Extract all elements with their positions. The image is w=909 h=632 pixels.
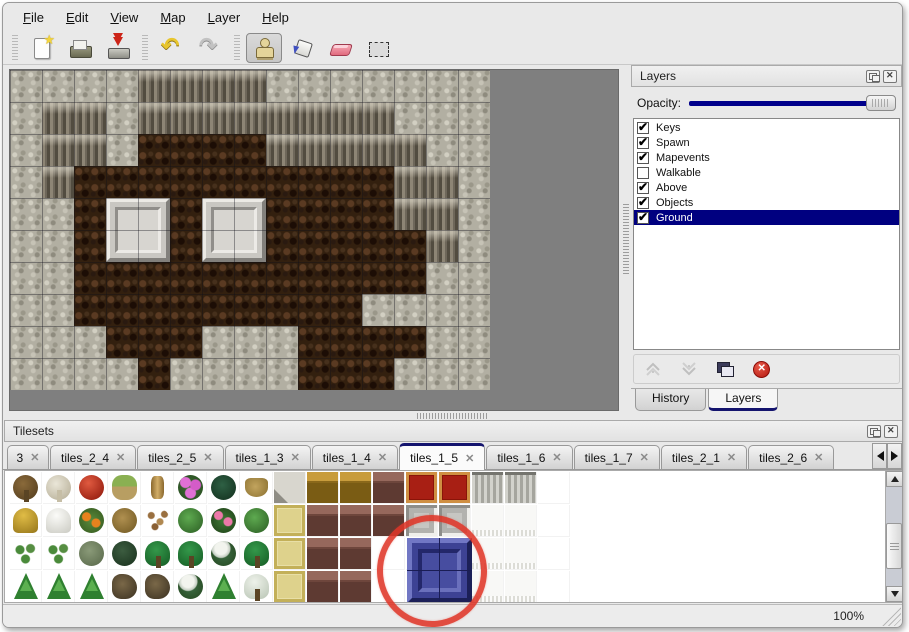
map-tile-brown-ground[interactable] bbox=[170, 198, 202, 230]
map-tile-light-rock[interactable] bbox=[42, 70, 74, 102]
map-tile-light-rock[interactable] bbox=[42, 230, 74, 262]
menu-edit[interactable]: Edit bbox=[56, 7, 98, 28]
map-tile-light-rock[interactable] bbox=[298, 70, 330, 102]
tileset-tab-tiles_1_4[interactable]: tiles_1_4✕ bbox=[312, 445, 398, 469]
close-panel-icon[interactable] bbox=[884, 425, 898, 438]
tileset-tile-empty[interactable] bbox=[538, 538, 570, 570]
layer-visibility-checkbox[interactable] bbox=[637, 167, 649, 179]
tileset-tile-hay-mound[interactable] bbox=[10, 505, 42, 537]
map-tile-light-rock[interactable] bbox=[426, 358, 458, 390]
map-tile-cliff-face[interactable] bbox=[266, 102, 298, 134]
map-tile-brown-ground[interactable] bbox=[74, 166, 106, 198]
tileset-tile-dry-grass[interactable] bbox=[241, 472, 273, 504]
tileset-tile-gold-wood[interactable] bbox=[340, 472, 372, 504]
tileset-tile-red-flower[interactable] bbox=[76, 472, 108, 504]
opacity-slider[interactable] bbox=[689, 94, 896, 112]
redo-button[interactable] bbox=[192, 33, 228, 63]
tileset-tile-brown-wood[interactable] bbox=[307, 505, 339, 537]
map-tile-cliff-face[interactable] bbox=[170, 70, 202, 102]
tileset-tile-gray-bush[interactable] bbox=[76, 538, 108, 570]
layer-name: Keys bbox=[656, 122, 680, 134]
chevron-down-icon bbox=[680, 360, 698, 378]
map-tile-light-rock[interactable] bbox=[426, 102, 458, 134]
tab-label: tiles_2_5 bbox=[148, 451, 196, 465]
tileset-tile-snow-tree[interactable] bbox=[175, 571, 207, 603]
tileset-tile-lily-pad[interactable] bbox=[241, 505, 273, 537]
map-tile-light-rock[interactable] bbox=[106, 134, 138, 166]
map-canvas-area[interactable] bbox=[9, 69, 619, 411]
float-panel-icon[interactable] bbox=[866, 70, 880, 83]
map-tile-brown-ground[interactable] bbox=[394, 326, 426, 358]
save-button[interactable] bbox=[100, 33, 136, 63]
map-tile-light-rock[interactable] bbox=[10, 102, 42, 134]
map-tile-brown-ground[interactable] bbox=[266, 230, 298, 262]
map-tile-brown-ground[interactable] bbox=[298, 358, 330, 390]
tileset-tab-tiles_2_4[interactable]: tiles_2_4✕ bbox=[50, 445, 136, 469]
map-tile-light-rock[interactable] bbox=[458, 70, 490, 102]
menu-file[interactable]: File bbox=[13, 7, 54, 28]
map-tile-brown-ground[interactable] bbox=[138, 262, 170, 294]
layer-visibility-checkbox[interactable]: ✔ bbox=[637, 137, 649, 149]
map-tile-light-rock[interactable] bbox=[106, 70, 138, 102]
new-button[interactable] bbox=[24, 33, 60, 63]
map-tile-light-rock[interactable] bbox=[458, 326, 490, 358]
checkmark-icon: ✔ bbox=[638, 120, 648, 134]
map-tile-brown-ground[interactable] bbox=[170, 134, 202, 166]
map-tile-light-rock[interactable] bbox=[42, 358, 74, 390]
layer-row-walkable[interactable]: Walkable bbox=[634, 165, 899, 180]
map-tile-cliff-face[interactable] bbox=[42, 134, 74, 166]
tileset-tile-bare-tree[interactable] bbox=[10, 472, 42, 504]
tileset-tab-tiles_1_3[interactable]: tiles_1_3✕ bbox=[225, 445, 311, 469]
map-tile-light-rock[interactable] bbox=[10, 70, 42, 102]
map-tile-cliff-face[interactable] bbox=[170, 102, 202, 134]
tileset-tile-stump[interactable] bbox=[109, 472, 141, 504]
map-tile-brown-ground[interactable] bbox=[138, 166, 170, 198]
tileset-tile-snow-palm[interactable] bbox=[241, 571, 273, 603]
tileset-tile-dark-bush[interactable] bbox=[109, 538, 141, 570]
map-tile-brown-ground[interactable] bbox=[138, 294, 170, 326]
layer-visibility-checkbox[interactable]: ✔ bbox=[637, 182, 649, 194]
checkmark-icon: ✔ bbox=[638, 210, 648, 224]
map-tile-light-rock[interactable] bbox=[458, 102, 490, 134]
map-tile-cliff-face[interactable] bbox=[362, 134, 394, 166]
map-tile-cliff-face[interactable] bbox=[138, 102, 170, 134]
map-tile-light-rock[interactable] bbox=[426, 294, 458, 326]
map-tile-light-rock[interactable] bbox=[266, 70, 298, 102]
map-tile-brown-ground[interactable] bbox=[234, 134, 266, 166]
tileset-tile-sprouts[interactable] bbox=[10, 538, 42, 570]
map-tile-brown-ground[interactable] bbox=[330, 358, 362, 390]
map-tile-brown-ground[interactable] bbox=[362, 358, 394, 390]
map-tile-brown-ground[interactable] bbox=[362, 262, 394, 294]
tileset-tile-gray-curtain[interactable] bbox=[505, 472, 537, 504]
layer-row-keys[interactable]: ✔Keys bbox=[634, 120, 899, 135]
map-tile-brown-ground[interactable] bbox=[330, 294, 362, 326]
map-tile-cliff-face[interactable] bbox=[74, 102, 106, 134]
float-panel-icon[interactable] bbox=[867, 425, 881, 438]
map-tile-brown-ground[interactable] bbox=[74, 294, 106, 326]
map-tile-cliff-face[interactable] bbox=[394, 198, 426, 230]
map-tile-light-rock[interactable] bbox=[234, 358, 266, 390]
map-tile-light-rock[interactable] bbox=[458, 358, 490, 390]
map-tile-brown-ground[interactable] bbox=[266, 198, 298, 230]
map-tile-brown-ground[interactable] bbox=[106, 326, 138, 358]
toolbar-handle[interactable] bbox=[12, 35, 18, 61]
tileset-tile-brown-wood[interactable] bbox=[307, 538, 339, 570]
tileset-tile-conifer[interactable] bbox=[76, 571, 108, 603]
layer-name: Spawn bbox=[656, 137, 690, 149]
opacity-row: Opacity: bbox=[631, 91, 902, 115]
map-tile-brown-ground[interactable] bbox=[74, 230, 106, 262]
tab-label: tiles_1_6 bbox=[497, 451, 545, 465]
delete-layer-button[interactable] bbox=[748, 357, 774, 381]
tileset-tile-pink-flowers[interactable] bbox=[175, 472, 207, 504]
map-tile-brown-ground[interactable] bbox=[330, 230, 362, 262]
layers-dock: Layers Opacity: ✔Keys✔Spawn✔MapeventsWal… bbox=[631, 65, 902, 411]
map-tile-cliff-face[interactable] bbox=[138, 70, 170, 102]
map-tile-brown-ground[interactable] bbox=[170, 230, 202, 262]
map-tile-light-rock[interactable] bbox=[170, 358, 202, 390]
tileset-tile-twisted-tree[interactable] bbox=[109, 571, 141, 603]
map-tile-cliff-face[interactable] bbox=[266, 134, 298, 166]
map-tile-cliff-face[interactable] bbox=[394, 134, 426, 166]
map-tile-light-rock[interactable] bbox=[362, 294, 394, 326]
toolbar-handle[interactable] bbox=[142, 35, 148, 61]
tab-close-icon[interactable]: ✕ bbox=[465, 452, 474, 465]
tileset-tile-leaves[interactable] bbox=[142, 505, 174, 537]
map-tile-light-rock[interactable] bbox=[106, 358, 138, 390]
tileset-scrollbar[interactable] bbox=[885, 471, 902, 602]
open-button[interactable] bbox=[62, 33, 98, 63]
stamp-tool-icon bbox=[252, 36, 276, 60]
map-tile-cliff-face[interactable] bbox=[202, 102, 234, 134]
arrow-left-icon bbox=[872, 451, 884, 461]
tab-label: tiles_1_3 bbox=[236, 451, 284, 465]
map-tile-brown-ground[interactable] bbox=[170, 166, 202, 198]
map-tile-brown-ground[interactable] bbox=[202, 134, 234, 166]
map-tile-cliff-face[interactable] bbox=[298, 102, 330, 134]
map-tile-cliff-face[interactable] bbox=[42, 102, 74, 134]
map-tile-cliff-face[interactable] bbox=[426, 198, 458, 230]
map-tile-light-rock[interactable] bbox=[10, 294, 42, 326]
tileset-tab-3[interactable]: 3✕ bbox=[7, 445, 49, 469]
map-tile-brown-ground[interactable] bbox=[394, 262, 426, 294]
tileset-tile-snow-tree[interactable] bbox=[208, 538, 240, 570]
map-tile-cliff-face[interactable] bbox=[234, 70, 266, 102]
map-tile-cliff-face[interactable] bbox=[42, 166, 74, 198]
map-tile-brown-ground[interactable] bbox=[266, 262, 298, 294]
tileset-tile-twisted-tree[interactable] bbox=[142, 571, 174, 603]
tileset-tile-gold-wood[interactable] bbox=[307, 472, 339, 504]
scrollbar-thumb[interactable] bbox=[886, 523, 902, 569]
map-tile-cliff-face[interactable] bbox=[426, 230, 458, 262]
tileset-tab-tiles_2_6[interactable]: tiles_2_6✕ bbox=[748, 445, 834, 469]
tileset-tile-brown-wood[interactable] bbox=[307, 571, 339, 603]
map-tile-brown-ground[interactable] bbox=[266, 294, 298, 326]
tileset-tile-red-carpet[interactable] bbox=[406, 472, 438, 504]
tileset-tile-conifer[interactable] bbox=[10, 571, 42, 603]
map-tile-light-rock[interactable] bbox=[74, 358, 106, 390]
tileset-tile-palm-tree[interactable] bbox=[241, 538, 273, 570]
tab-scroll-buttons bbox=[872, 443, 902, 469]
tileset-tile-orange-flowers[interactable] bbox=[76, 505, 108, 537]
map-tile-brown-ground[interactable] bbox=[202, 262, 234, 294]
tileset-tile-empty[interactable] bbox=[538, 571, 570, 603]
tileset-tile-white-curtain[interactable] bbox=[472, 505, 504, 537]
tileset-tile-fern[interactable] bbox=[208, 472, 240, 504]
map-tile-brown-ground[interactable] bbox=[298, 262, 330, 294]
arrow-up-icon bbox=[891, 472, 899, 482]
map-tile-light-rock[interactable] bbox=[458, 166, 490, 198]
tab-close-icon[interactable]: ✕ bbox=[203, 451, 212, 464]
map-tile-light-rock[interactable] bbox=[394, 70, 426, 102]
tileset-tile-brown-wood[interactable] bbox=[340, 538, 372, 570]
tileset-tile-white-curtain[interactable] bbox=[505, 505, 537, 537]
tileset-tile-sprouts[interactable] bbox=[43, 538, 75, 570]
map-beveled-block[interactable] bbox=[202, 198, 266, 262]
map-tile-light-rock[interactable] bbox=[10, 326, 42, 358]
tileset-tab-tiles_1_7[interactable]: tiles_1_7✕ bbox=[574, 445, 660, 469]
map-tile-cliff-face[interactable] bbox=[330, 134, 362, 166]
dock-tab-layers[interactable]: Layers bbox=[708, 389, 778, 411]
menu-view[interactable]: View bbox=[100, 7, 148, 28]
map-tile-light-rock[interactable] bbox=[106, 102, 138, 134]
tileset-grid[interactable] bbox=[10, 472, 571, 603]
map-tile-brown-ground[interactable] bbox=[138, 134, 170, 166]
map-tile-light-rock[interactable] bbox=[74, 70, 106, 102]
map-tile-light-rock[interactable] bbox=[394, 294, 426, 326]
map-tile-cliff-face[interactable] bbox=[362, 102, 394, 134]
tileset-tile-palm-tree[interactable] bbox=[142, 538, 174, 570]
map-tile-light-rock[interactable] bbox=[458, 230, 490, 262]
layer-visibility-checkbox[interactable]: ✔ bbox=[637, 122, 649, 134]
map-tile-cliff-face[interactable] bbox=[74, 134, 106, 166]
scroll-tabs-right-button[interactable] bbox=[887, 443, 902, 469]
map-tile-brown-ground[interactable] bbox=[202, 294, 234, 326]
close-panel-icon[interactable] bbox=[883, 70, 897, 83]
stamp-button[interactable] bbox=[246, 33, 282, 63]
splitter-grip[interactable] bbox=[623, 204, 629, 276]
map-tile-brown-ground[interactable] bbox=[170, 326, 202, 358]
map-tile-brown-ground[interactable] bbox=[394, 230, 426, 262]
tab-close-icon[interactable]: ✕ bbox=[552, 451, 561, 464]
map-tile-brown-ground[interactable] bbox=[330, 326, 362, 358]
tilesets-panel-titlebar: Tilesets bbox=[4, 420, 903, 442]
tab-close-icon[interactable]: ✕ bbox=[640, 451, 649, 464]
select-button[interactable] bbox=[360, 33, 396, 63]
tileset-tile-lily-pad[interactable] bbox=[175, 505, 207, 537]
tileset-tile-mat[interactable] bbox=[274, 538, 306, 570]
map-tile-brown-ground[interactable] bbox=[202, 166, 234, 198]
map-tile-brown-ground[interactable] bbox=[362, 166, 394, 198]
map-tile-brown-ground[interactable] bbox=[234, 294, 266, 326]
map-tile-light-rock[interactable] bbox=[426, 262, 458, 294]
opacity-slider-track[interactable] bbox=[689, 101, 894, 106]
tileset-tile-palm-tree[interactable] bbox=[175, 538, 207, 570]
tab-close-icon[interactable]: ✕ bbox=[291, 451, 300, 464]
tab-close-icon[interactable]: ✕ bbox=[378, 451, 387, 464]
dock-tab-history[interactable]: History bbox=[635, 389, 706, 411]
map-tile-brown-ground[interactable] bbox=[234, 262, 266, 294]
map-tile-brown-ground[interactable] bbox=[106, 294, 138, 326]
tileset-tile-dead-tree[interactable] bbox=[43, 472, 75, 504]
map-tile-brown-ground[interactable] bbox=[330, 262, 362, 294]
tileset-tile-dry-bush[interactable] bbox=[109, 505, 141, 537]
map-tile-light-rock[interactable] bbox=[42, 198, 74, 230]
tab-close-icon[interactable]: ✕ bbox=[30, 451, 39, 464]
tileset-tile-empty[interactable] bbox=[538, 472, 570, 504]
scroll-up-button[interactable] bbox=[886, 471, 903, 487]
fill-button[interactable] bbox=[284, 33, 320, 63]
arrow-down-icon bbox=[891, 591, 899, 601]
map-tile-light-rock[interactable] bbox=[330, 70, 362, 102]
map-tile-light-rock[interactable] bbox=[234, 326, 266, 358]
map-tile-brown-ground[interactable] bbox=[106, 166, 138, 198]
toolbar-handle[interactable] bbox=[234, 35, 240, 61]
tab-close-icon[interactable]: ✕ bbox=[814, 451, 823, 464]
lower-layer-button[interactable] bbox=[676, 357, 702, 381]
map-tile-brown-ground[interactable] bbox=[106, 262, 138, 294]
map-tile-brown-ground[interactable] bbox=[266, 166, 298, 198]
map-tile-light-rock[interactable] bbox=[362, 70, 394, 102]
layer-visibility-checkbox[interactable]: ✔ bbox=[637, 212, 649, 224]
map-tile-brown-ground[interactable] bbox=[298, 326, 330, 358]
map-tile-brown-ground[interactable] bbox=[74, 198, 106, 230]
layer-visibility-checkbox[interactable]: ✔ bbox=[637, 152, 649, 164]
layer-row-above[interactable]: ✔Above bbox=[634, 180, 899, 195]
menu-help[interactable]: Help bbox=[252, 7, 299, 28]
map-tile-brown-ground[interactable] bbox=[362, 198, 394, 230]
map-tile-light-rock[interactable] bbox=[42, 326, 74, 358]
vertical-splitter[interactable] bbox=[621, 69, 630, 411]
tileset-tile-gray-curtain[interactable] bbox=[472, 472, 504, 504]
map-tile-light-rock[interactable] bbox=[74, 326, 106, 358]
map-beveled-block[interactable] bbox=[106, 198, 170, 262]
tileset-tile-rose-bush[interactable] bbox=[208, 505, 240, 537]
tileset-tile-brown-wood[interactable] bbox=[340, 505, 372, 537]
layer-visibility-checkbox[interactable]: ✔ bbox=[637, 197, 649, 209]
layer-row-ground[interactable]: ✔Ground bbox=[634, 210, 899, 225]
map-tile-brown-ground[interactable] bbox=[298, 166, 330, 198]
layer-row-spawn[interactable]: ✔Spawn bbox=[634, 135, 899, 150]
tileset-tile-mat[interactable] bbox=[274, 571, 306, 603]
tileset-tile-stone-tile[interactable] bbox=[274, 472, 306, 504]
map-tile-light-rock[interactable] bbox=[10, 198, 42, 230]
tileset-tile-white-curtain[interactable] bbox=[505, 538, 537, 570]
tileset-tile-red-carpet[interactable] bbox=[439, 472, 471, 504]
map-tile-light-rock[interactable] bbox=[394, 102, 426, 134]
new-file-icon bbox=[30, 36, 54, 60]
scroll-down-button[interactable] bbox=[886, 586, 903, 602]
map-tile-light-rock[interactable] bbox=[458, 134, 490, 166]
tab-close-icon[interactable]: ✕ bbox=[727, 451, 736, 464]
map-tile-cliff-face[interactable] bbox=[330, 102, 362, 134]
tileset-tab-tiles_2_5[interactable]: tiles_2_5✕ bbox=[137, 445, 223, 469]
raise-layer-button[interactable] bbox=[640, 357, 666, 381]
map-tile-light-rock[interactable] bbox=[10, 358, 42, 390]
map-tile-brown-ground[interactable] bbox=[74, 262, 106, 294]
tileset-tile-conifer[interactable] bbox=[208, 571, 240, 603]
map-tile-light-rock[interactable] bbox=[266, 326, 298, 358]
map-tile-light-rock[interactable] bbox=[266, 358, 298, 390]
tileset-tile-white-curtain[interactable] bbox=[505, 571, 537, 603]
map-tile-light-rock[interactable] bbox=[394, 358, 426, 390]
tileset-tile-conifer[interactable] bbox=[43, 571, 75, 603]
map-tile-cliff-face[interactable] bbox=[234, 102, 266, 134]
map-tile-brown-ground[interactable] bbox=[362, 326, 394, 358]
undo-button[interactable] bbox=[154, 33, 190, 63]
map-tile-cliff-face[interactable] bbox=[298, 134, 330, 166]
menu-layer[interactable]: Layer bbox=[198, 7, 251, 28]
map-tile-light-rock[interactable] bbox=[426, 326, 458, 358]
horizontal-splitter[interactable] bbox=[3, 411, 902, 420]
map-tile-cliff-face[interactable] bbox=[426, 166, 458, 198]
opacity-slider-handle[interactable] bbox=[866, 95, 896, 111]
layer-list[interactable]: ✔Keys✔Spawn✔MapeventsWalkable✔Above✔Obje… bbox=[633, 118, 900, 350]
map-tile-brown-ground[interactable] bbox=[362, 230, 394, 262]
tileset-tile-empty[interactable] bbox=[538, 505, 570, 537]
menu-map[interactable]: Map bbox=[150, 7, 195, 28]
map-tile-light-rock[interactable] bbox=[10, 262, 42, 294]
map-tile-light-rock[interactable] bbox=[42, 294, 74, 326]
map-tile-light-rock[interactable] bbox=[10, 166, 42, 198]
tileset-tile-brown-wood[interactable] bbox=[340, 571, 372, 603]
map-tile-light-rock[interactable] bbox=[426, 134, 458, 166]
scroll-tabs-left-button[interactable] bbox=[872, 443, 887, 469]
tileset-tab-tiles_1_5[interactable]: tiles_1_5✕ bbox=[399, 443, 485, 470]
map-tile-brown-ground[interactable] bbox=[330, 198, 362, 230]
map-tile-brown-ground[interactable] bbox=[138, 326, 170, 358]
eraser-button[interactable] bbox=[322, 33, 358, 63]
map-tile-light-rock[interactable] bbox=[458, 198, 490, 230]
tileset-tile-brown-wood[interactable] bbox=[373, 472, 405, 504]
map-tile-brown-ground[interactable] bbox=[330, 166, 362, 198]
map-tile-brown-ground[interactable] bbox=[298, 294, 330, 326]
tab-close-icon[interactable]: ✕ bbox=[116, 451, 125, 464]
map-tile-light-rock[interactable] bbox=[458, 262, 490, 294]
map-tile-light-rock[interactable] bbox=[42, 262, 74, 294]
map-tile-cliff-face[interactable] bbox=[394, 166, 426, 198]
map-tile-light-rock[interactable] bbox=[426, 70, 458, 102]
map-tile-light-rock[interactable] bbox=[10, 230, 42, 262]
duplicate-layer-button[interactable] bbox=[712, 357, 738, 381]
map-tile-brown-ground[interactable] bbox=[298, 198, 330, 230]
map-tile-cliff-face[interactable] bbox=[202, 70, 234, 102]
map-tile-brown-ground[interactable] bbox=[138, 358, 170, 390]
map-tile-brown-ground[interactable] bbox=[234, 166, 266, 198]
tileset-tab-tiles_2_1[interactable]: tiles_2_1✕ bbox=[661, 445, 747, 469]
resize-grip[interactable] bbox=[881, 606, 901, 626]
layer-row-objects[interactable]: ✔Objects bbox=[634, 195, 899, 210]
map-tile-light-rock[interactable] bbox=[458, 294, 490, 326]
tileset-tile-trunk[interactable] bbox=[142, 472, 174, 504]
delete-icon bbox=[753, 361, 770, 378]
tileset-tab-tiles_1_6[interactable]: tiles_1_6✕ bbox=[486, 445, 572, 469]
tileset-tile-mat[interactable] bbox=[274, 505, 306, 537]
splitter-grip[interactable] bbox=[417, 413, 489, 419]
map-tile-brown-ground[interactable] bbox=[298, 230, 330, 262]
map-tile-brown-ground[interactable] bbox=[170, 262, 202, 294]
tileset-tile-snow-mound[interactable] bbox=[43, 505, 75, 537]
map-tile-brown-ground[interactable] bbox=[170, 294, 202, 326]
layer-row-mapevents[interactable]: ✔Mapevents bbox=[634, 150, 899, 165]
map-tile-light-rock[interactable] bbox=[202, 358, 234, 390]
tab-label: tiles_1_7 bbox=[585, 451, 633, 465]
map-tile-light-rock[interactable] bbox=[10, 134, 42, 166]
arrow-right-icon bbox=[891, 451, 903, 461]
map-tile-light-rock[interactable] bbox=[202, 326, 234, 358]
